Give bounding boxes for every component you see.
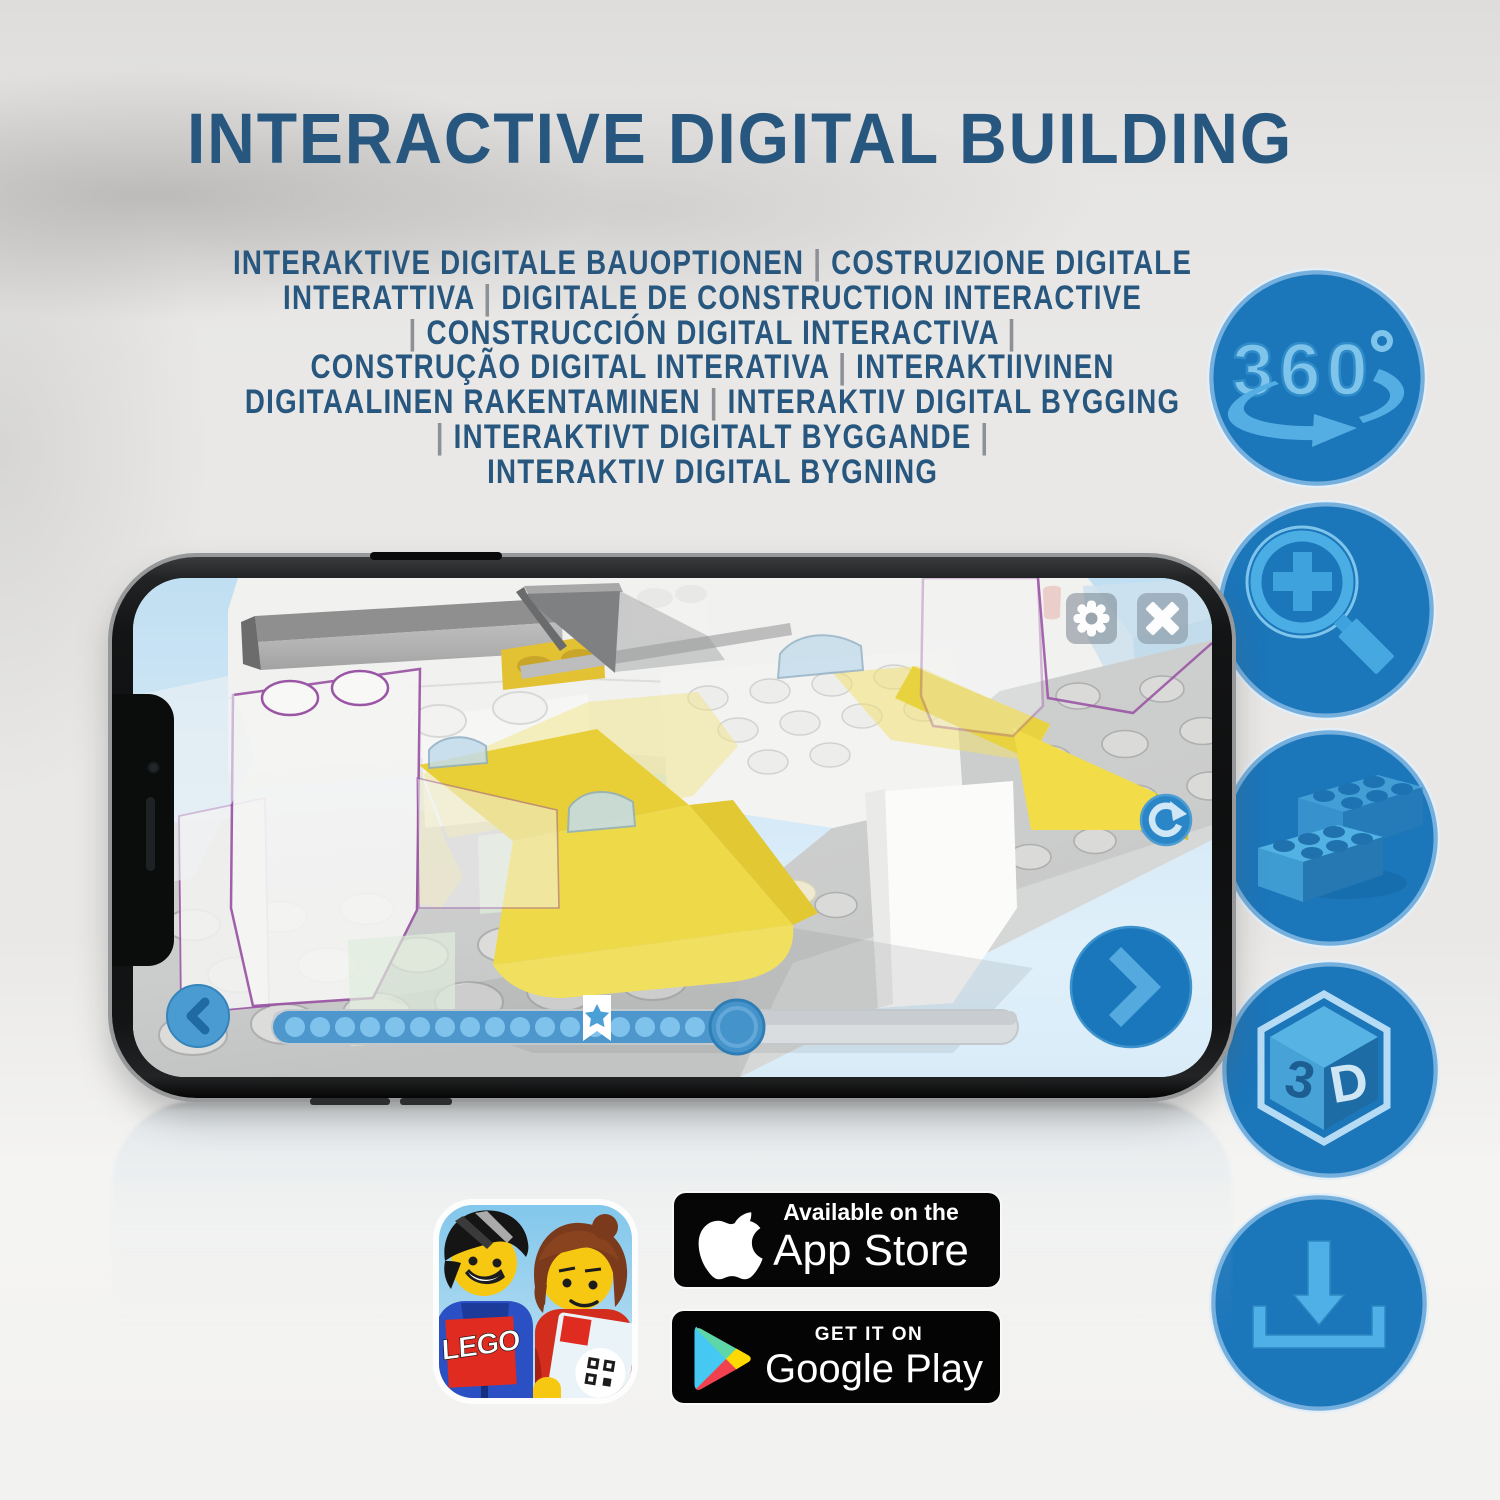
svg-text:360: 360 [1232, 328, 1373, 411]
